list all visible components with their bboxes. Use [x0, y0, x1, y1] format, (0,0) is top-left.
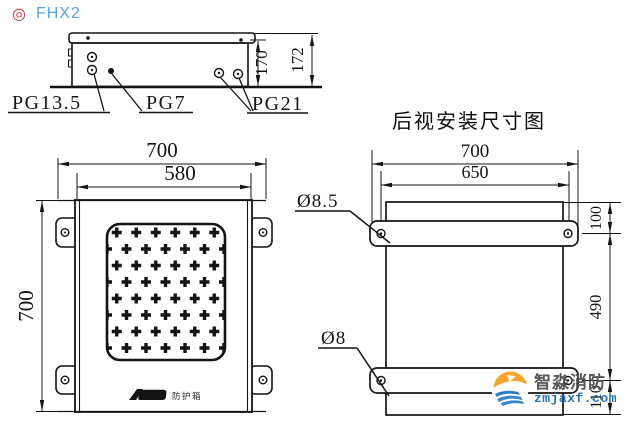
- dim-490: 490: [586, 295, 605, 320]
- dim-172: 172: [288, 47, 307, 73]
- rear-view-drawing: 后视安装尺寸图 700 650 Ø8.5: [295, 110, 621, 415]
- lid-screw: [86, 36, 90, 40]
- gland-label-pg135: PG13.5: [12, 92, 82, 114]
- dim-100: 100: [588, 206, 605, 230]
- product-dimension-sheet: ◎ FHX2: [0, 0, 630, 433]
- hole-dia-bottom-label: Ø8: [321, 328, 346, 349]
- top-view-drawing: PG13.5 PG7 PG21 170 172: [8, 33, 322, 115]
- gland-label-pg21: PG21: [252, 93, 304, 115]
- dim-580-width: 580: [164, 161, 196, 185]
- dim-650: 650: [462, 162, 489, 182]
- dim-700-rear: 700: [461, 141, 490, 162]
- dim-700-height: 700: [14, 290, 38, 322]
- mesh-panel: [107, 224, 225, 360]
- dim-700-width: 700: [146, 138, 178, 162]
- front-view-drawing: 700 580: [14, 138, 272, 412]
- lid-strip: [69, 33, 255, 43]
- nameplate-label: 防护箱: [172, 391, 202, 401]
- lid-screw: [239, 38, 243, 42]
- cable-gland-hole: [108, 68, 114, 74]
- gland-label-pg7: PG7: [146, 92, 186, 114]
- hole-dia-top-label: Ø8.5: [297, 191, 338, 212]
- watermark-domain: zmjaxf.com: [534, 392, 617, 406]
- watermark-logo-icon: [491, 371, 529, 409]
- box-body-top-view: [72, 43, 248, 87]
- site-watermark: 智淼消防 zmjaxf.com: [491, 371, 627, 409]
- rear-view-title: 后视安装尺寸图: [392, 110, 546, 133]
- dim-170: 170: [252, 50, 271, 76]
- watermark-brand: 智淼消防: [534, 374, 617, 392]
- mounting-rail-top: [370, 221, 578, 246]
- technical-drawing: PG13.5 PG7 PG21 170 172 700 580: [0, 0, 630, 433]
